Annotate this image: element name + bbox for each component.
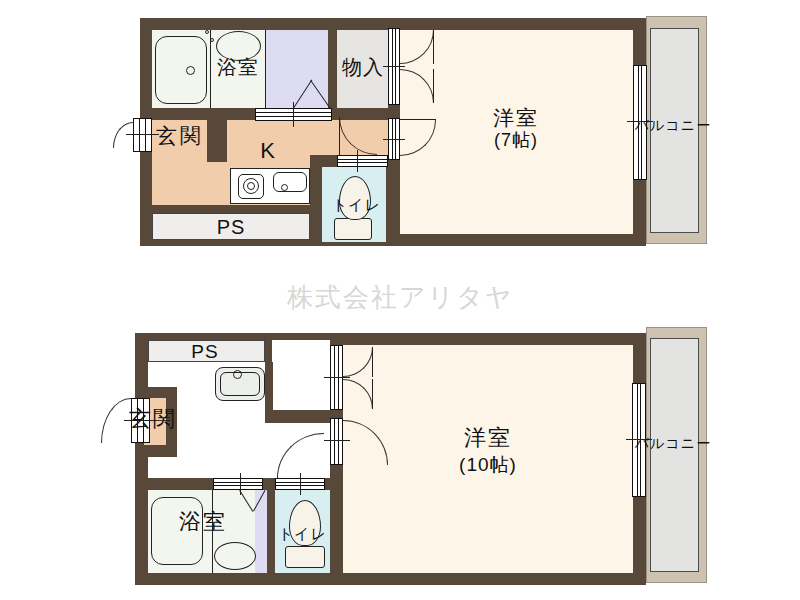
- room-label-storage: 物入: [333, 57, 393, 77]
- room-label-main-size: (10帖): [443, 455, 533, 474]
- tick-mark: [240, 473, 241, 495]
- toilet-door-opening: [337, 155, 388, 167]
- main-room-door-opening: [330, 418, 343, 465]
- balcony-floor: [650, 338, 699, 572]
- room-label-toilet: トイレ: [278, 526, 326, 541]
- room-label-main-size: (7帖): [476, 131, 556, 149]
- wall: [148, 445, 177, 457]
- room-washspace: [266, 30, 328, 108]
- room-label-ps: PS: [201, 217, 261, 237]
- room-label-kitchen: K: [248, 140, 288, 162]
- door-leaf: [372, 379, 373, 409]
- entry-door-opening: [133, 118, 152, 152]
- room-label-entry: 玄関: [152, 125, 208, 146]
- sink-drain-icon: [281, 184, 288, 191]
- sink-icon: [273, 172, 307, 192]
- tick-mark: [383, 139, 405, 140]
- room-label-bath: 浴室: [208, 57, 268, 77]
- drain-dot-icon: [186, 66, 195, 75]
- room-label-entry: 玄関: [125, 408, 181, 430]
- faucet-dot-icon: [233, 370, 242, 379]
- tick-mark: [324, 377, 350, 378]
- bathtub-icon: [155, 36, 207, 104]
- room-label-bath: 浴室: [171, 511, 235, 533]
- room-label-balcony: バルコニー: [631, 118, 715, 132]
- tick-mark: [324, 440, 350, 441]
- faucet-dot-icon: [205, 30, 209, 34]
- room-label-ps: PS: [175, 342, 235, 361]
- door-leaf: [339, 117, 340, 155]
- room-label-toilet: トイレ: [332, 197, 380, 212]
- door-leaf: [433, 69, 434, 103]
- room-label-main: 洋室: [476, 107, 556, 128]
- toilet-tank-icon: [334, 218, 372, 240]
- wall: [265, 410, 330, 423]
- floorplan-canvas: 株式会社アリタヤ: [0, 0, 800, 600]
- toilet-tank-icon: [285, 546, 325, 568]
- room-label-main: 洋室: [448, 427, 528, 449]
- watermark-text: 株式会社アリタヤ: [287, 285, 513, 311]
- stove-icon: [247, 182, 255, 190]
- door-leaf: [372, 347, 373, 377]
- door-swing-arc: [113, 122, 133, 148]
- tick-mark: [300, 473, 301, 495]
- faucet-dot-icon: [210, 38, 214, 42]
- washbasin-icon: [214, 542, 256, 570]
- door-leaf: [400, 119, 436, 120]
- wall: [207, 118, 227, 162]
- room-label-balcony: バルコニー: [631, 436, 715, 450]
- bath-door-opening: [213, 478, 263, 490]
- door-leaf: [433, 30, 434, 64]
- tick-mark: [357, 150, 358, 172]
